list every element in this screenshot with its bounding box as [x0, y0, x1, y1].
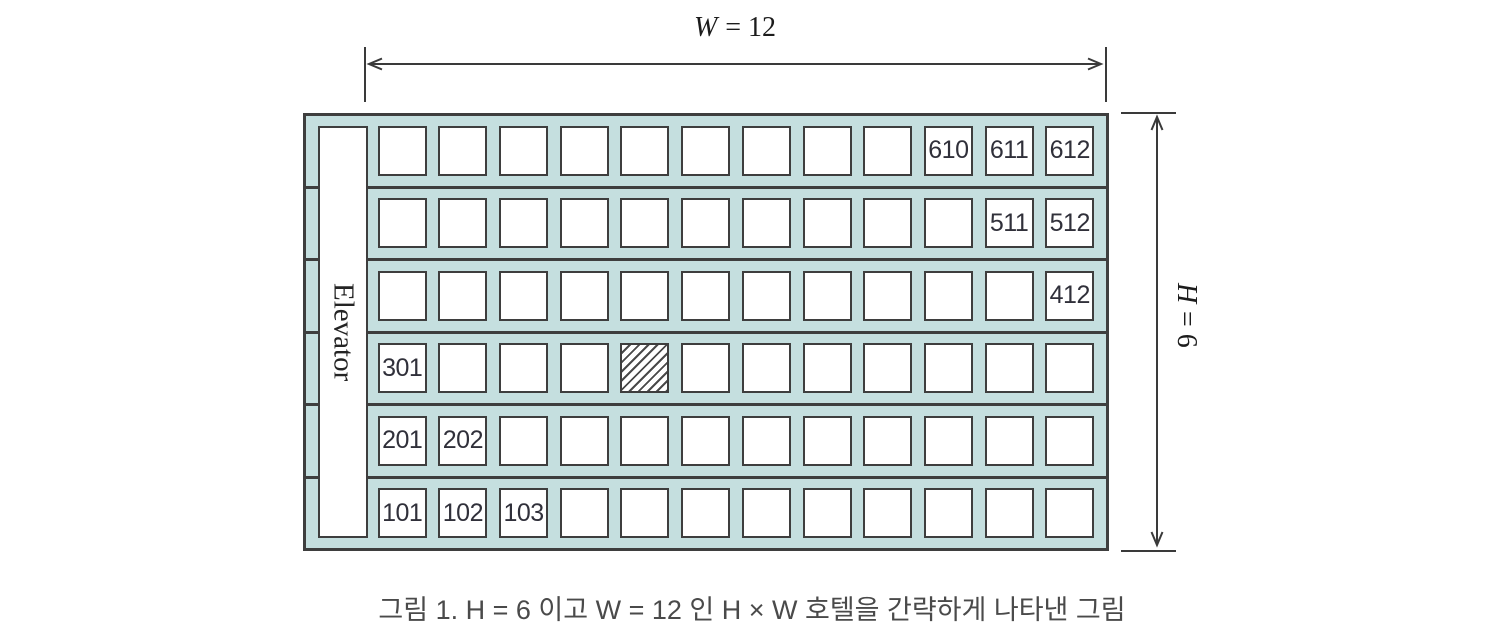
room-empty-floor4-col4 [560, 271, 609, 321]
room-empty-floor5-col2 [438, 198, 487, 248]
room-412: 412 [1045, 271, 1094, 321]
height-value: = 6 [1170, 311, 1202, 348]
room-empty-floor1-col9 [863, 488, 912, 538]
room-512: 512 [1045, 198, 1094, 248]
room-612: 612 [1045, 126, 1094, 176]
room-empty-floor6-col8 [803, 126, 852, 176]
room-empty-floor3-col12 [1045, 343, 1094, 393]
room-empty-floor1-col7 [742, 488, 791, 538]
room-empty-floor5-col1 [378, 198, 427, 248]
room-empty-floor3-col6 [681, 343, 730, 393]
width-arrow [366, 56, 1104, 72]
room-empty-floor5-col7 [742, 198, 791, 248]
room-201: 201 [378, 416, 427, 466]
room-empty-floor6-col6 [681, 126, 730, 176]
hotel-figure: W= 12 6106116125115124123012012021011021… [0, 0, 1504, 640]
floor-3-rooms: 301 [366, 334, 1106, 404]
room-empty-floor3-col8 [803, 343, 852, 393]
room-empty-floor2-col12 [1045, 416, 1094, 466]
room-empty-floor2-col3 [499, 416, 548, 466]
room-empty-floor4-col11 [985, 271, 1034, 321]
room-empty-floor4-col9 [863, 271, 912, 321]
room-empty-floor3-col10 [924, 343, 973, 393]
floor-6-rooms: 610611612 [366, 116, 1106, 186]
elevator-shaft: Elevator [318, 126, 368, 538]
room-empty-floor3-col4 [560, 343, 609, 393]
room-empty-floor2-col9 [863, 416, 912, 466]
room-empty-floor6-col7 [742, 126, 791, 176]
room-101: 101 [378, 488, 427, 538]
floor-5-rooms: 511512 [366, 189, 1106, 259]
room-empty-floor3-col2 [438, 343, 487, 393]
width-dimension-label: W= 12 [365, 12, 1105, 44]
room-empty-floor2-col6 [681, 416, 730, 466]
room-empty-floor5-col6 [681, 198, 730, 248]
room-empty-floor2-col7 [742, 416, 791, 466]
room-empty-floor1-col12 [1045, 488, 1094, 538]
room-empty-floor4-col7 [742, 271, 791, 321]
room-empty-floor1-col8 [803, 488, 852, 538]
floor-4-rooms: 412 [366, 261, 1106, 331]
figure-caption: 그림 1. H = 6 이고 W = 12 인 H × W 호텔을 간략하게 나… [0, 588, 1504, 627]
room-empty-floor6-col1 [378, 126, 427, 176]
room-empty-floor1-col11 [985, 488, 1034, 538]
floor-5: 511512 [306, 186, 1106, 259]
room-empty-floor4-col8 [803, 271, 852, 321]
room-empty-floor1-col6 [681, 488, 730, 538]
room-empty-floor5-col4 [560, 198, 609, 248]
hotel-building: 610611612511512412301201202101102103 Ele… [303, 113, 1109, 551]
room-empty-floor5-col8 [803, 198, 852, 248]
room-empty-floor5-col5 [620, 198, 669, 248]
height-dimension-label: H= 6 [1170, 283, 1202, 383]
floor-1-rooms: 101102103 [366, 479, 1106, 549]
room-empty-floor6-col9 [863, 126, 912, 176]
floor-2: 201202 [306, 403, 1106, 476]
room-empty-floor3-col3 [499, 343, 548, 393]
elevator-label: Elevator [327, 283, 360, 381]
room-hatched-floor3-col5 [620, 343, 669, 393]
room-empty-floor5-col9 [863, 198, 912, 248]
floor-4: 412 [306, 258, 1106, 331]
height-symbol: H [1170, 283, 1202, 303]
room-empty-floor2-col11 [985, 416, 1034, 466]
room-empty-floor4-col2 [438, 271, 487, 321]
floors-container: 610611612511512412301201202101102103 [306, 116, 1106, 548]
room-511: 511 [985, 198, 1034, 248]
room-empty-floor1-col4 [560, 488, 609, 538]
width-value: = 12 [725, 12, 776, 43]
floor-3: 301 [306, 331, 1106, 404]
room-empty-floor1-col5 [620, 488, 669, 538]
room-empty-floor6-col4 [560, 126, 609, 176]
room-611: 611 [985, 126, 1034, 176]
room-empty-floor2-col10 [924, 416, 973, 466]
room-empty-floor2-col5 [620, 416, 669, 466]
room-empty-floor3-col11 [985, 343, 1034, 393]
floor-6: 610611612 [306, 116, 1106, 186]
room-empty-floor5-col10 [924, 198, 973, 248]
room-empty-floor2-col4 [560, 416, 609, 466]
room-103: 103 [499, 488, 548, 538]
height-arrow [1149, 114, 1165, 548]
room-610: 610 [924, 126, 973, 176]
room-102: 102 [438, 488, 487, 538]
room-empty-floor4-col5 [620, 271, 669, 321]
room-empty-floor4-col3 [499, 271, 548, 321]
room-301: 301 [378, 343, 427, 393]
room-empty-floor1-col10 [924, 488, 973, 538]
room-empty-floor4-col1 [378, 271, 427, 321]
width-tick-right [1105, 47, 1107, 102]
room-empty-floor3-col7 [742, 343, 791, 393]
room-202: 202 [438, 416, 487, 466]
room-empty-floor5-col3 [499, 198, 548, 248]
floor-1: 101102103 [306, 476, 1106, 549]
floor-2-rooms: 201202 [366, 406, 1106, 476]
width-symbol: W [694, 12, 717, 43]
room-empty-floor6-col5 [620, 126, 669, 176]
room-empty-floor2-col8 [803, 416, 852, 466]
room-empty-floor4-col10 [924, 271, 973, 321]
room-empty-floor3-col9 [863, 343, 912, 393]
room-empty-floor6-col3 [499, 126, 548, 176]
room-empty-floor6-col2 [438, 126, 487, 176]
height-tick-bottom [1121, 550, 1176, 552]
room-empty-floor4-col6 [681, 271, 730, 321]
